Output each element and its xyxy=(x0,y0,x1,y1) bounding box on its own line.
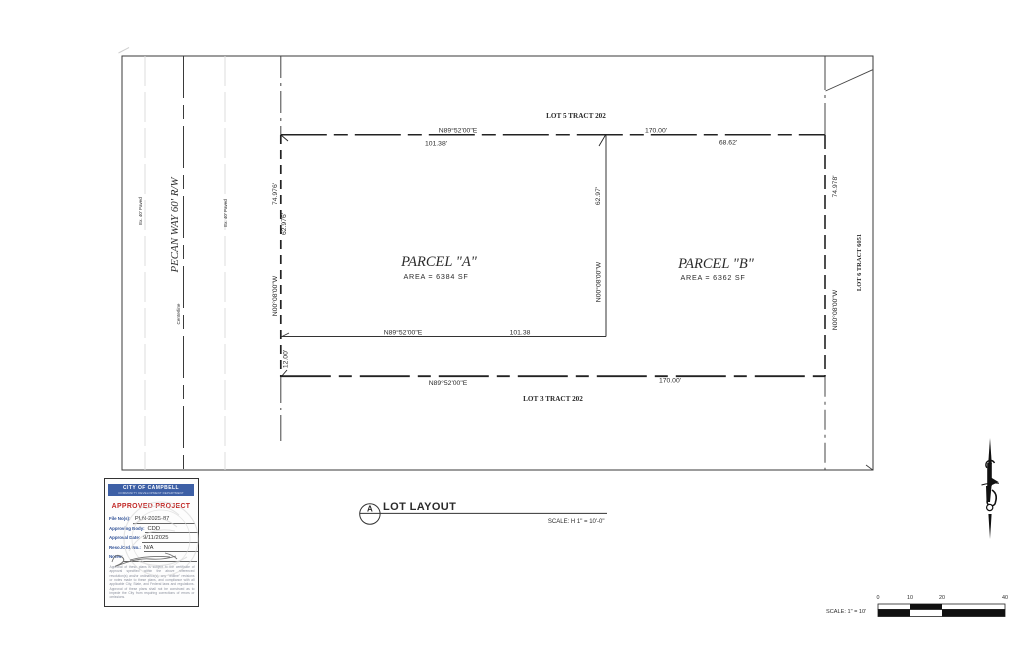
svg-text:LOT LAYOUT: LOT LAYOUT xyxy=(383,501,456,513)
svg-text:68.62': 68.62' xyxy=(719,140,737,147)
svg-text:SCALE: H 1" = 10'-0": SCALE: H 1" = 10'-0" xyxy=(548,519,605,525)
svg-text:SCALE: 1" = 10': SCALE: 1" = 10' xyxy=(826,609,866,615)
svg-text:N89°52'00"E: N89°52'00"E xyxy=(384,329,423,337)
svg-text:PECAN WAY 60' R/W: PECAN WAY 60' R/W xyxy=(169,177,181,274)
svg-text:Centerline: Centerline xyxy=(176,303,181,324)
svg-text:Ex. 40' Paved: Ex. 40' Paved xyxy=(138,197,143,225)
svg-text:LOT 5 TRACT 202: LOT 5 TRACT 202 xyxy=(546,112,606,120)
svg-text:74.978': 74.978' xyxy=(832,175,839,197)
svg-text:PARCEL "B": PARCEL "B" xyxy=(677,256,755,272)
svg-text:N00°08'00"W: N00°08'00"W xyxy=(831,289,839,330)
svg-text:101.38': 101.38' xyxy=(425,141,447,148)
svg-text:N00°08'00"W: N00°08'00"W xyxy=(271,275,279,316)
svg-text:A: A xyxy=(367,505,373,514)
svg-text:0: 0 xyxy=(877,595,880,601)
svg-text:Ex. 40' Paved: Ex. 40' Paved xyxy=(223,199,228,227)
svg-text:170.00': 170.00' xyxy=(645,128,667,135)
svg-text:LOT 3 TRACT 202: LOT 3 TRACT 202 xyxy=(523,395,583,403)
svg-text:10: 10 xyxy=(907,595,913,601)
svg-text:40: 40 xyxy=(1002,595,1008,601)
svg-text:62.976': 62.976' xyxy=(281,213,288,235)
svg-text:74.976': 74.976' xyxy=(272,183,279,205)
svg-text:PARCEL "A": PARCEL "A" xyxy=(400,254,478,270)
svg-text:101.38: 101.38 xyxy=(510,330,531,337)
svg-text:N00°08'00"W: N00°08'00"W xyxy=(595,261,603,302)
svg-text:170.00': 170.00' xyxy=(659,378,681,385)
svg-text:N89°52'00"E: N89°52'00"E xyxy=(439,127,478,135)
svg-text:20: 20 xyxy=(939,595,945,601)
svg-text:12.00': 12.00' xyxy=(283,350,290,368)
svg-text:62.97': 62.97' xyxy=(595,187,602,205)
svg-text:AREA = 6362 SF: AREA = 6362 SF xyxy=(680,273,745,282)
svg-text:AREA = 6384 SF: AREA = 6384 SF xyxy=(403,272,468,281)
svg-text:N89°52'00"E: N89°52'00"E xyxy=(429,379,468,387)
svg-text:LOT 6 TRACT 6051: LOT 6 TRACT 6051 xyxy=(856,234,863,291)
